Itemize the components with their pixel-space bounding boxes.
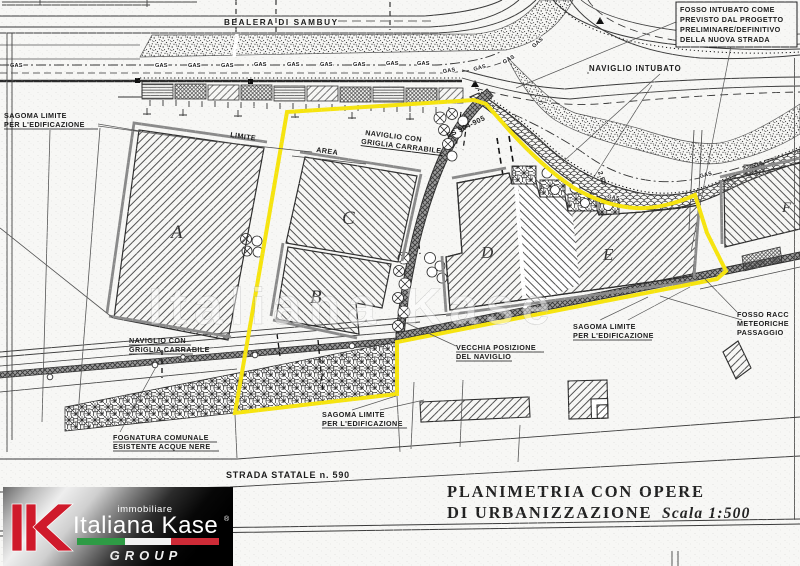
svg-text:GROUP: GROUP xyxy=(110,548,183,563)
svg-text:®: ® xyxy=(224,515,230,523)
svg-text:Italiana Kase: Italiana Kase xyxy=(73,512,218,539)
